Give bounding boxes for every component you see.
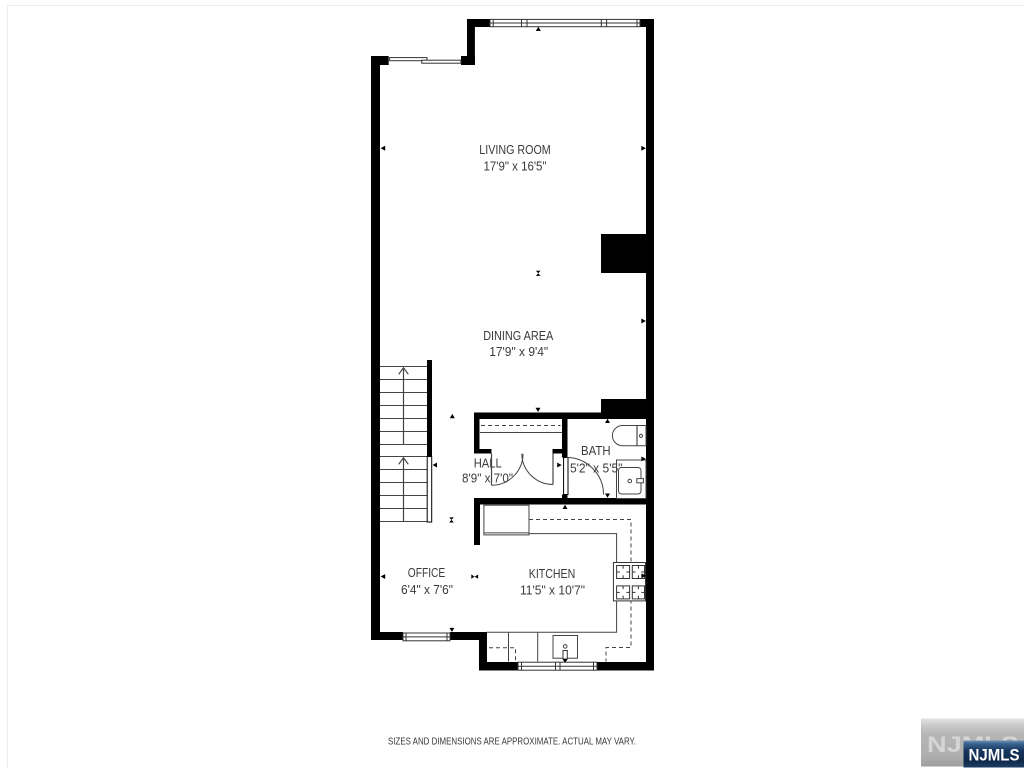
svg-text:DINING AREA: DINING AREA xyxy=(483,328,553,343)
svg-text:17'9" x 9'4": 17'9" x 9'4" xyxy=(489,344,548,359)
svg-text:LIVING ROOM: LIVING ROOM xyxy=(479,142,551,157)
svg-text:HALL: HALL xyxy=(474,456,502,471)
svg-text:6'4" x 7'6": 6'4" x 7'6" xyxy=(401,582,453,597)
svg-text:SIZES AND DIMENSIONS ARE APPRO: SIZES AND DIMENSIONS ARE APPROXIMATE. AC… xyxy=(388,737,636,748)
svg-text:KITCHEN: KITCHEN xyxy=(529,566,576,581)
svg-text:8'9" x 7'0": 8'9" x 7'0" xyxy=(462,470,513,485)
svg-text:BATH: BATH xyxy=(581,443,611,458)
svg-text:11'5" x 10'7": 11'5" x 10'7" xyxy=(520,583,585,598)
svg-text:OFFICE: OFFICE xyxy=(408,565,446,580)
svg-text:5'2" x 5'5": 5'2" x 5'5" xyxy=(570,461,623,476)
svg-text:NJMLS: NJMLS xyxy=(969,746,1020,765)
svg-text:17'9" x 16'5": 17'9" x 16'5" xyxy=(484,158,547,173)
